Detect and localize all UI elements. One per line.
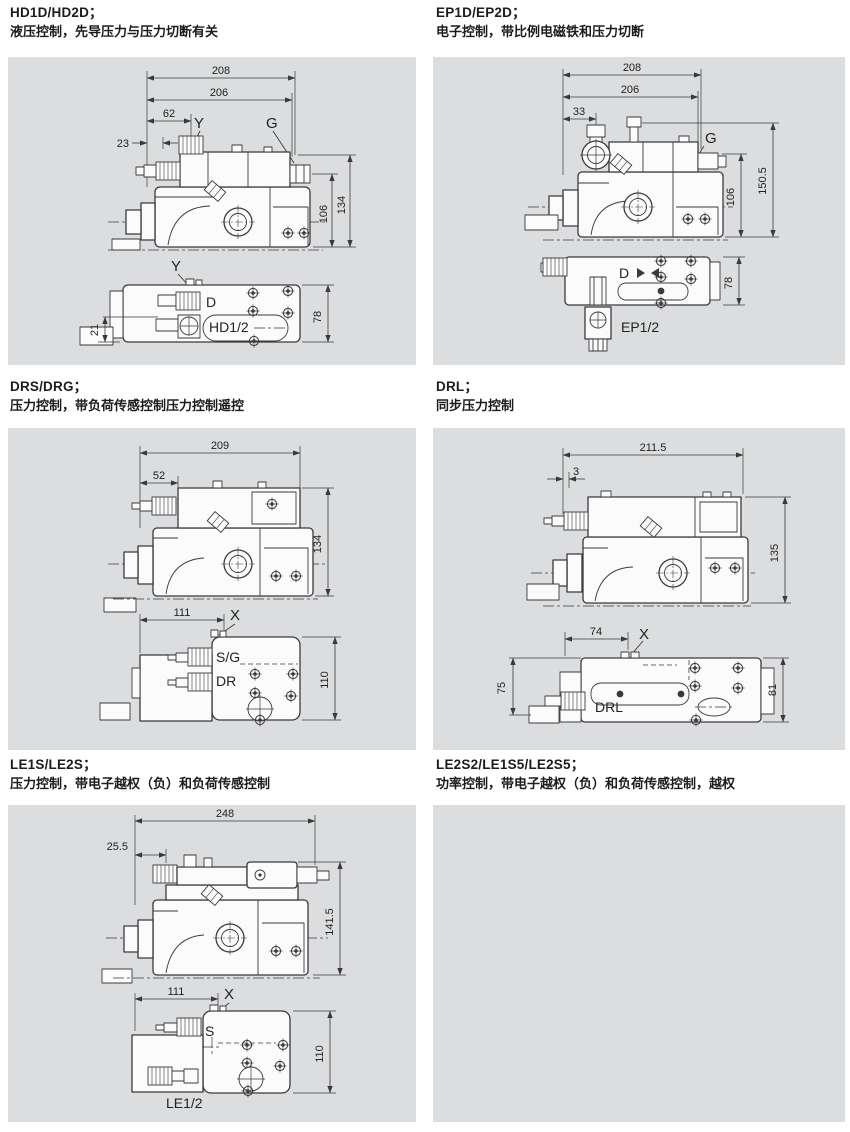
figure-le-drawing: 248 25.5 141.5 — [8, 805, 416, 1122]
port-label-y: Y — [194, 115, 204, 132]
dim-height-inner: 106 — [318, 205, 330, 223]
model-description: 压力控制，带电子越权（负）和负荷传感控制 — [10, 775, 270, 793]
port-label-y-bottom: Y — [171, 258, 181, 275]
dim-bottom-width: 74 — [590, 626, 602, 638]
figure-drl-drawing: 211.5 3 135 — [433, 428, 845, 750]
dim-width-outer: 208 — [623, 62, 641, 74]
figure-panel-ep: 208 206 33 150.5 106 G — [433, 57, 845, 365]
section-header-le: LE1S/LE2S； 压力控制，带电子越权（负）和负荷传感控制 — [10, 756, 270, 793]
model-label: EP1/2 — [621, 319, 659, 335]
port-label-x: X — [230, 607, 240, 624]
dim-height: 141.5 — [324, 908, 336, 936]
dim-height-inner: 106 — [725, 188, 737, 206]
section-header-drl: DRL； 同步压力控制 — [436, 378, 514, 415]
figure-ep-drawing: 208 206 33 150.5 106 G — [433, 57, 845, 365]
dim-port-offset: 33 — [573, 106, 585, 118]
port-label-g: G — [705, 130, 717, 147]
section-header-ep: EP1D/EP2D； 电子控制，带比例电磁铁和压力切断 — [436, 4, 644, 41]
model-description: 液压控制，先导压力与压力切断有关 — [10, 23, 218, 41]
model-label: DRL — [595, 699, 623, 715]
dim-height: 135 — [769, 544, 781, 562]
dim-width-outer: 248 — [216, 808, 234, 820]
section-header-drs: DRS/DRG； 压力控制，带负荷传感控制压力控制遥控 — [10, 378, 244, 415]
dim-bottom-height: 78 — [723, 277, 735, 289]
model-label: HD1/2 — [209, 319, 249, 335]
model-description: 同步压力控制 — [436, 397, 514, 415]
model-description: 电子控制，带比例电磁铁和压力切断 — [436, 23, 644, 41]
port-label-sg: S/G — [216, 649, 240, 665]
dim-width-inner: 206 — [210, 87, 228, 99]
figure-panel-hd: 208 206 62 23 134 106 Y G — [8, 57, 416, 365]
model-description: 压力控制，带负荷传感控制压力控制遥控 — [10, 397, 244, 415]
dim-width-outer: 211.5 — [640, 442, 667, 454]
figure-panel-le: 248 25.5 141.5 — [8, 805, 416, 1122]
dim-port-offset: 62 — [163, 108, 175, 120]
model-title: HD1D/HD2D； — [10, 4, 218, 22]
model-title: DRL； — [436, 378, 514, 396]
port-label-dr: DR — [216, 673, 236, 689]
figure-panel-drl: 211.5 3 135 — [433, 428, 845, 750]
dim-bottom-left: 21 — [89, 324, 101, 336]
figure-panel-le2s2-empty — [433, 805, 845, 1122]
port-label-s: S — [205, 1023, 214, 1039]
dim-bottom-height: 78 — [312, 311, 324, 323]
figure-panel-drs: 209 52 134 — [8, 428, 416, 750]
dim-bottom-height: 110 — [314, 1045, 326, 1063]
port-label-x: X — [639, 626, 649, 643]
port-label-g: G — [266, 115, 278, 132]
dim-small-offset: 23 — [117, 138, 129, 150]
dim-port-offset: 52 — [153, 470, 165, 482]
model-label: LE1/2 — [166, 1095, 203, 1111]
dim-bottom-width: 111 — [168, 986, 185, 998]
dim-bottom-height: 110 — [319, 671, 331, 689]
dim-height-outer: 134 — [336, 196, 348, 214]
section-header-le2s2: LE2S2/LE1S5/LE2S5； 功率控制，带电子越权（负）和负荷传感控制，… — [436, 756, 735, 793]
dim-height: 134 — [312, 535, 324, 553]
dim-width-outer: 208 — [212, 65, 230, 77]
dim-width-outer: 209 — [211, 440, 229, 452]
model-title: LE2S2/LE1S5/LE2S5； — [436, 756, 735, 774]
port-label-d: D — [619, 265, 629, 281]
port-label-x: X — [224, 986, 234, 1003]
dim-width-inner: 206 — [621, 84, 639, 96]
dim-port-offset: 25.5 — [107, 841, 128, 853]
dim-bottom-left: 75 — [496, 682, 508, 694]
model-title: EP1D/EP2D； — [436, 4, 644, 22]
model-description: 功率控制，带电子越权（负）和负荷传感控制，越权 — [436, 775, 735, 793]
dim-bottom-height: 81 — [767, 684, 779, 696]
port-label-d: D — [206, 294, 216, 310]
figure-hd-drawing: 208 206 62 23 134 106 Y G — [8, 57, 416, 365]
section-header-hd: HD1D/HD2D； 液压控制，先导压力与压力切断有关 — [10, 4, 218, 41]
dim-height-outer: 150.5 — [757, 167, 769, 195]
dim-small-offset: 3 — [573, 466, 579, 478]
dim-bottom-width: 111 — [174, 607, 191, 619]
model-title: DRS/DRG； — [10, 378, 244, 396]
model-title: LE1S/LE2S； — [10, 756, 270, 774]
figure-drs-drawing: 209 52 134 — [8, 428, 416, 750]
datasheet-page: HD1D/HD2D； 液压控制，先导压力与压力切断有关 EP1D/EP2D； 电… — [0, 0, 850, 1132]
